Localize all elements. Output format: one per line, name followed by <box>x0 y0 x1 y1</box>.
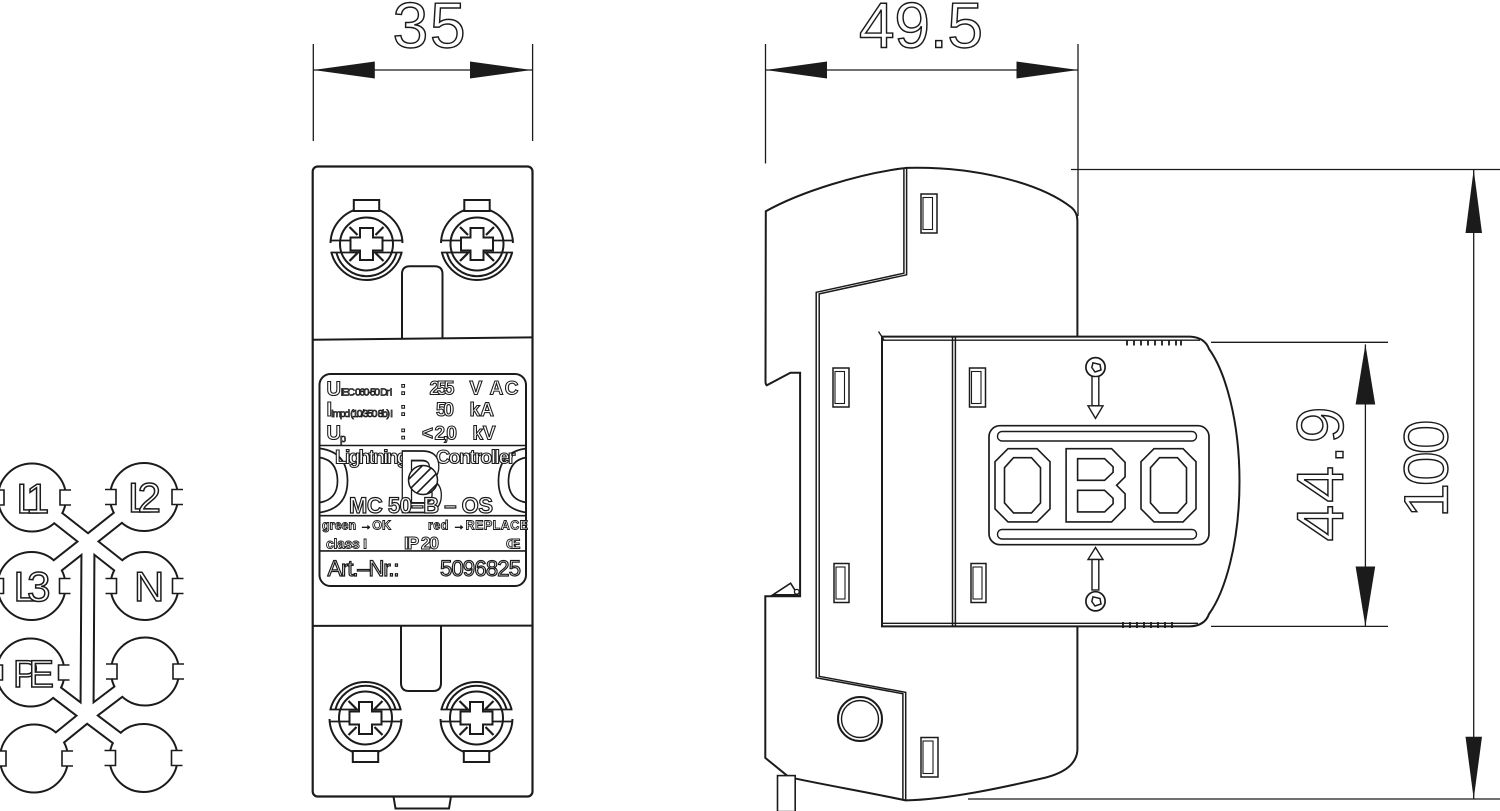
svg-text:44.9: 44.9 <box>1283 407 1357 542</box>
svg-text:Impd (10/350 8b) I: Impd (10/350 8b) I <box>331 408 393 420</box>
svg-text:PE: PE <box>13 654 54 696</box>
svg-text:N: N <box>134 563 164 610</box>
svg-text:IEC 060-50 Dr I: IEC 060-50 Dr I <box>341 386 393 398</box>
svg-text:35: 35 <box>393 0 466 62</box>
svg-text:kV: kV <box>473 424 496 445</box>
svg-text:L2: L2 <box>128 474 161 521</box>
svg-text:255: 255 <box>430 379 455 400</box>
svg-text:49.5: 49.5 <box>859 0 983 62</box>
svg-text::: : <box>400 400 406 421</box>
svg-text:red →REPLACE: red →REPLACE <box>428 519 528 533</box>
svg-text:Controller: Controller <box>436 447 516 469</box>
svg-text::: : <box>400 379 406 400</box>
svg-text:IP 20: IP 20 <box>404 533 439 553</box>
svg-text:U: U <box>327 423 341 445</box>
svg-text:L3: L3 <box>14 563 51 610</box>
svg-text:V AC: V AC <box>470 379 519 400</box>
svg-text:green →OK: green →OK <box>322 519 391 533</box>
svg-text:Art.–Nr.:: Art.–Nr.: <box>328 556 400 581</box>
svg-text:100: 100 <box>1393 420 1462 518</box>
svg-text:CE: CE <box>506 536 521 552</box>
svg-text:L1: L1 <box>16 475 49 522</box>
svg-text:kA: kA <box>470 400 495 421</box>
svg-text:5096825: 5096825 <box>440 556 521 581</box>
svg-text:MC 50–B – OS: MC 50–B – OS <box>349 493 493 518</box>
svg-text:50: 50 <box>436 400 454 421</box>
svg-text:p: p <box>340 433 346 445</box>
svg-text:U: U <box>327 378 341 400</box>
svg-text:class I: class I <box>326 536 367 552</box>
